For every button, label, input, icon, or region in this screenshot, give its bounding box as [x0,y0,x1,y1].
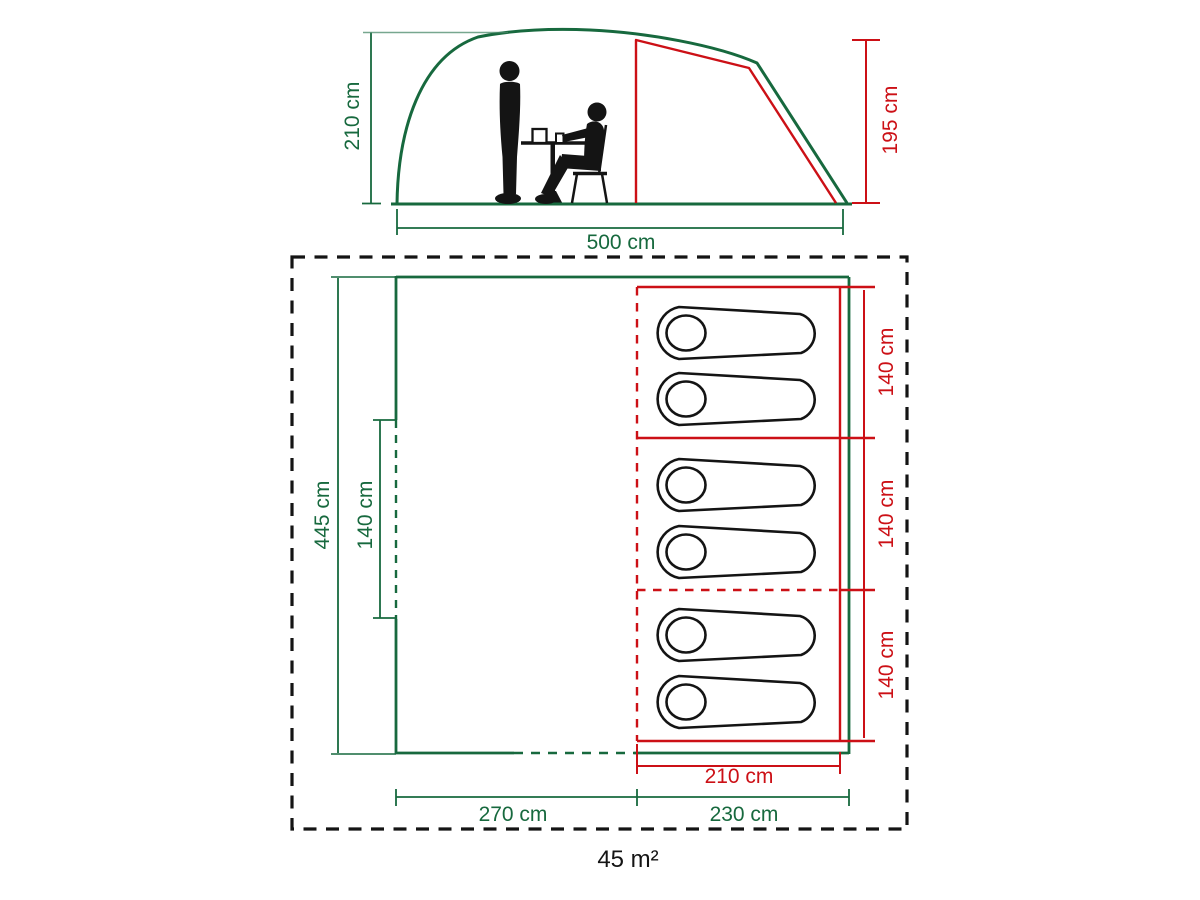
seated-person-silhouette [535,103,607,205]
tent-spec-diagram-page: 210 cm 195 cm 500 cm [0,0,1200,900]
outer-height-label: 210 cm [341,82,364,151]
sleeping-bag-icon [658,676,815,728]
dimension-outer-height: 210 cm [341,33,508,204]
dimension-bottom-lengths: 270 cm 230 cm [396,789,849,826]
bedroom-width-label-3: 140 cm [875,631,898,700]
dimension-inner-height: 195 cm [852,40,902,203]
floor-plan-view: 445 cm 140 cm 140 cm 140 cm 140 cm 210 c… [292,257,907,873]
bedroom-area-length-label: 230 cm [710,803,779,826]
bedroom-width-label-2: 140 cm [875,480,898,549]
door-width-label: 140 cm [354,481,377,550]
elevation-view: 210 cm 195 cm 500 cm [341,29,902,254]
inner-height-label: 195 cm [879,86,902,155]
sleeping-bags [658,307,815,728]
dimension-length: 500 cm [397,209,843,254]
sleeping-bag-icon [658,373,815,425]
outer-footprint-outline [292,257,907,829]
sleeping-bag-icon [658,609,815,661]
dimension-bedroom-widths: 140 cm 140 cm 140 cm [864,290,898,738]
sleeping-bag-icon [658,307,815,359]
depth-label: 445 cm [311,481,334,550]
sleeping-bag-icon [658,459,815,511]
inner-tent-profile [636,40,836,203]
total-area-label: 45 m² [597,846,658,873]
bedroom-length-label: 210 cm [705,765,774,788]
tent-diagram-canvas: 210 cm 195 cm 500 cm [0,0,1200,900]
dimension-bedroom-length: 210 cm [637,744,840,788]
cup-icon [533,129,547,143]
dimension-door-width: 140 cm [354,420,397,618]
sleeping-bag-icon [658,526,815,578]
bedroom-width-label-1: 140 cm [875,328,898,397]
length-label: 500 cm [587,231,656,254]
standing-person-silhouette [495,61,521,204]
living-area-length-label: 270 cm [479,803,548,826]
